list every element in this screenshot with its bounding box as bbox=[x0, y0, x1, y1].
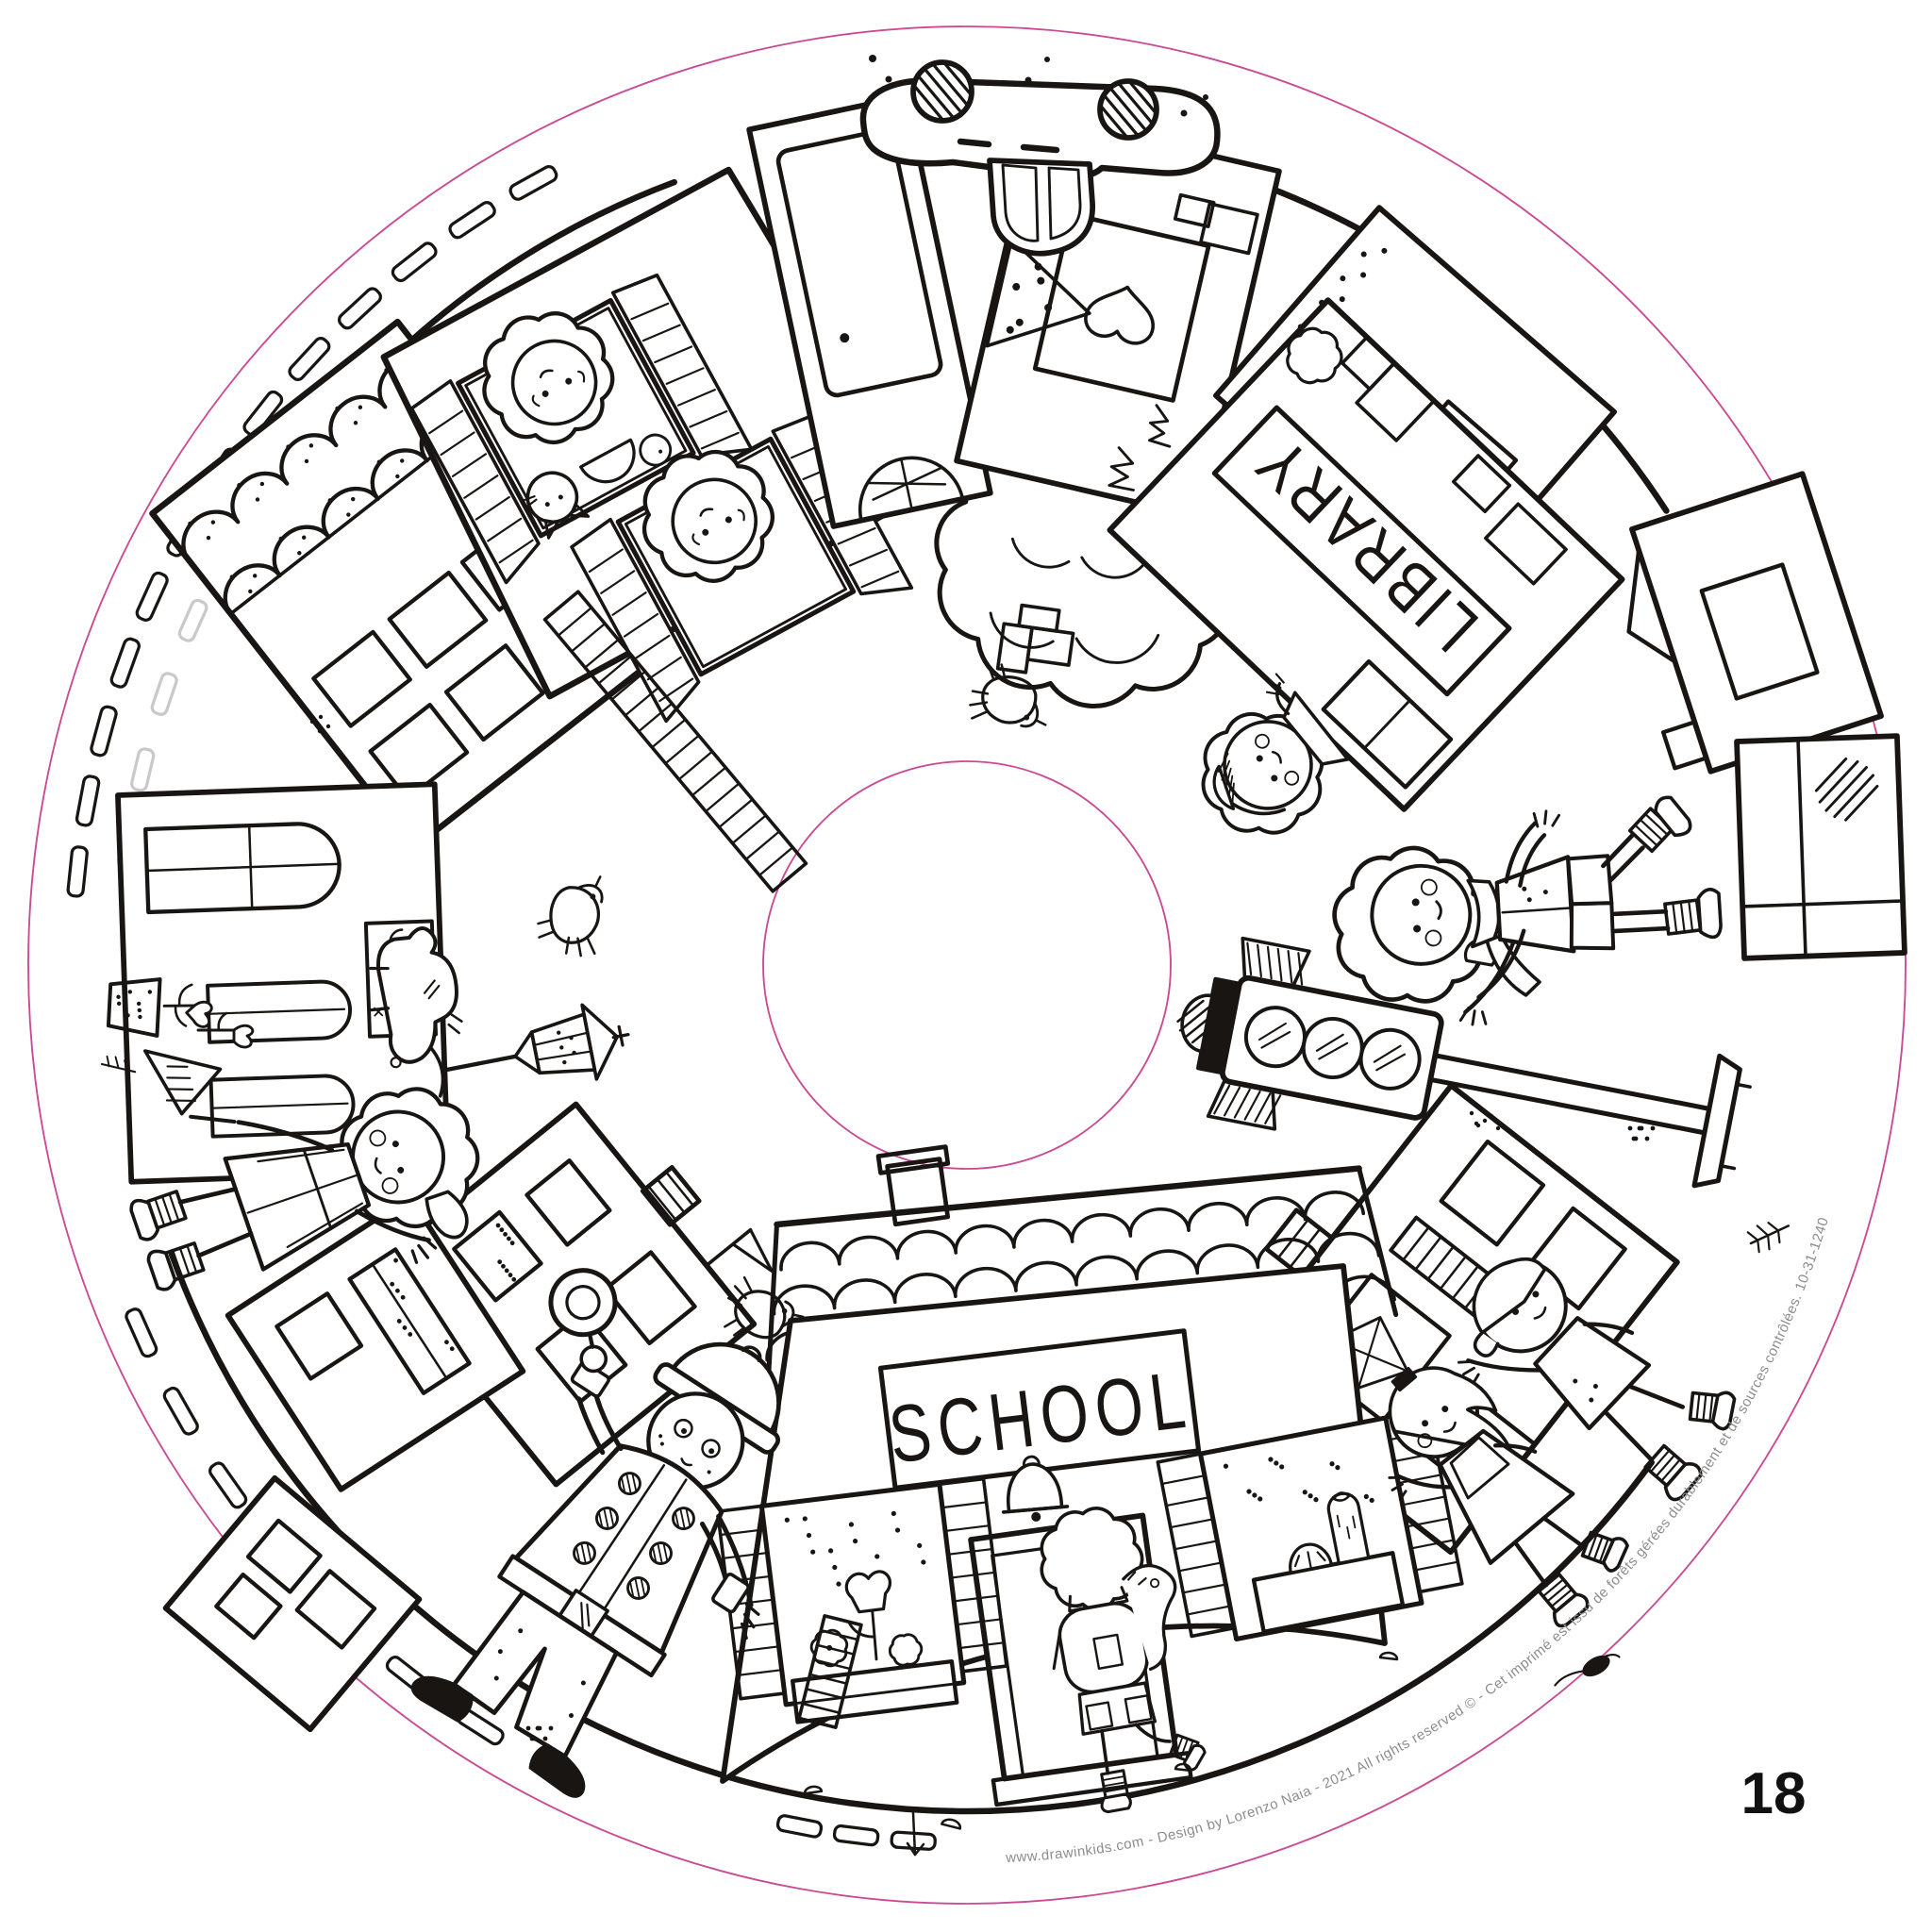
svg-text:18: 18 bbox=[1741, 1761, 1807, 1826]
